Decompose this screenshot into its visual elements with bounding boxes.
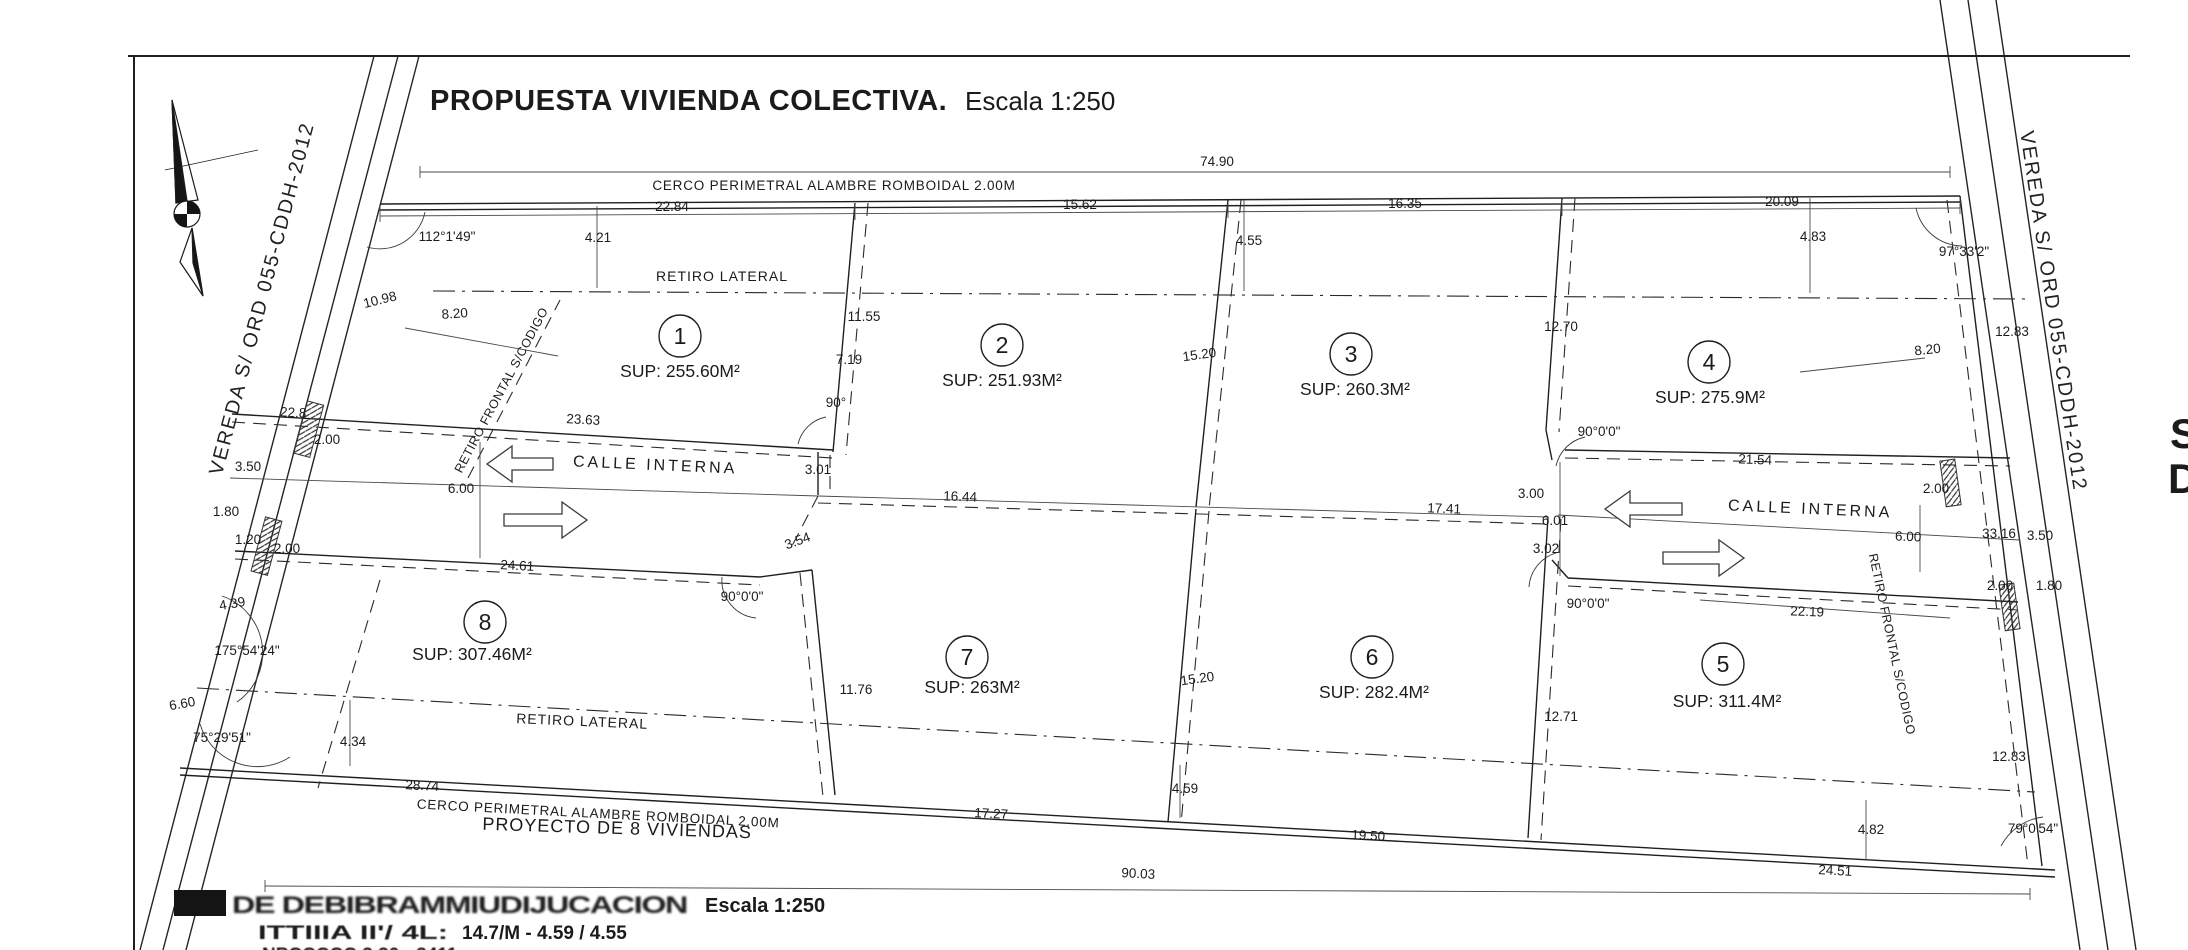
site-plan-drawing: PROPUESTA VIVIENDA COLECTIVA. Escala 1:2… [0, 0, 2188, 950]
drawing-title-scale: Escala 1:250 [965, 86, 1115, 116]
setback-lateral-top-label: RETIRO LATERAL [656, 268, 788, 284]
edge-partial-letter-1: S [2170, 410, 2188, 457]
bottom-title-scale: Escala 1:250 [705, 895, 825, 917]
dimension-label: 17.41 [1427, 500, 1461, 516]
dimension-label: 12.83 [1992, 749, 2026, 764]
lot-area: SUP: 307.46M² [412, 644, 532, 664]
lot-area: SUP: 263M² [924, 677, 1019, 697]
lot-3: 3 SUP: 260.3M² [1300, 333, 1410, 399]
dimension-label: 8.20 [441, 305, 468, 322]
internal-street-left-label: CALLE INTERNA [573, 453, 738, 477]
lot-number: 4 [1703, 349, 1716, 375]
edge-partial-letter-2: D [2168, 455, 2188, 502]
dimension-label: 19.50 [1351, 827, 1386, 844]
north-arrow-icon [165, 100, 258, 296]
dimension-label: 74.90 [1200, 154, 1234, 169]
dimension-label: 6.00 [448, 481, 474, 496]
dimension-label: 22.84 [655, 199, 689, 214]
bottom-line3-prefix: ITTIIIA II'/ 4L: [258, 923, 448, 944]
lot-area: SUP: 260.3M² [1300, 379, 1410, 399]
setback-frontal-left-label: RETIRO FRONTAL S/CODIGO [452, 305, 551, 475]
setback-lateral-bottom-label: RETIRO LATERAL [516, 710, 649, 732]
lot-number: 1 [674, 323, 687, 349]
dimension-label: 175°54'24" [214, 643, 280, 658]
street-name-right: VEREDA S/ ORD 055-CDDH-2012 [2015, 129, 2091, 492]
bottom-line3-values: 14.7/M - 4.59 / 4.55 [462, 923, 627, 944]
dimension-label: 22.8 [280, 404, 307, 420]
site-plan-sheet: PROPUESTA VIVIENDA COLECTIVA. Escala 1:2… [0, 0, 2188, 950]
lot-5: 5 SUP: 311.4M² [1673, 643, 1782, 711]
lot-8: 8 SUP: 307.46M² [412, 601, 532, 664]
lot-area: SUP: 275.9M² [1655, 387, 1765, 407]
lot-number: 6 [1366, 644, 1379, 670]
dimension-label: 1.80 [2036, 578, 2062, 593]
bottom-title-blot [174, 890, 226, 916]
dimension-labels: 74.9022.8415.6216.3520.09112°1'49"97°33'… [168, 154, 2062, 882]
angle-arcs [200, 208, 2043, 846]
dimension-label: 2.00 [1923, 481, 1949, 496]
dimension-label: 79°0'54" [2008, 821, 2059, 836]
dimension-label: 12.83 [1995, 324, 2029, 339]
lot-number: 7 [961, 644, 974, 670]
lot-number: 2 [996, 332, 1009, 358]
dimension-label: 3.50 [2027, 528, 2053, 543]
dimension-label: 28.74 [405, 777, 440, 794]
dimension-label: 90°0'0" [1567, 596, 1610, 611]
dimension-label: 90.03 [1121, 865, 1156, 882]
lot-area: SUP: 255.60M² [620, 361, 740, 381]
lot-6: 6 SUP: 282.4M² [1319, 636, 1429, 702]
dimension-label: 4.82 [1858, 822, 1884, 837]
lot-2: 2 SUP: 251.93M² [942, 324, 1062, 390]
internal-street-right-label: CALLE INTERNA [1728, 497, 1893, 521]
dimension-label: 11.76 [840, 682, 873, 697]
dimension-label: 3.02 [1533, 541, 1559, 556]
dimension-label: 11.55 [848, 309, 881, 324]
dimension-label: 23.63 [566, 411, 601, 428]
lot-number: 5 [1717, 651, 1730, 677]
dimension-label: 75°29'51" [193, 730, 251, 745]
bottom-line4-partial: NPCCCCC 3.30 - 3411 [262, 945, 458, 950]
dimension-label: 2.00 [274, 541, 300, 556]
dimension-label: 24.61 [500, 557, 535, 574]
dimension-label: 4.34 [340, 734, 367, 749]
bottom-title-illegible: DE DEBIBRAMMIUDIJUCACION [232, 892, 687, 919]
dimension-label: 24.51 [1818, 862, 1853, 879]
dimension-label: 12.71 [1544, 709, 1578, 724]
lot-number: 8 [479, 609, 492, 635]
dimension-label: 6.01 [1542, 513, 1568, 528]
setback-lines-dashed [232, 198, 2028, 866]
dimension-label: 17.27 [974, 805, 1009, 822]
dimension-label: 15.62 [1063, 197, 1097, 212]
lot-area: SUP: 282.4M² [1319, 682, 1429, 702]
lot-area: SUP: 251.93M² [942, 370, 1062, 390]
dimension-label: 15.20 [1180, 669, 1216, 689]
dimension-label: 6.60 [168, 694, 196, 713]
drawing-title: PROPUESTA VIVIENDA COLECTIVA. [430, 85, 947, 117]
dimension-label: 4.21 [585, 230, 611, 245]
dimension-label: 3.01 [805, 462, 831, 477]
dimension-label: 1.80 [213, 504, 239, 519]
dimension-label: 3.50 [235, 459, 261, 474]
dimension-label: 16.44 [943, 488, 978, 504]
dimension-label: 10.98 [362, 288, 398, 311]
dimension-label: 3.54 [783, 529, 813, 552]
dimension-label: 22.19 [1790, 603, 1824, 619]
dimension-label: 33.16 [1982, 526, 2016, 541]
dimension-label: 7.19 [836, 352, 862, 367]
dimension-label: 4.59 [1172, 781, 1198, 796]
lateral-setback-lines [197, 291, 2035, 792]
dimension-label: 97°33'2" [1939, 244, 1990, 259]
dimension-label: 90°0'0" [1578, 424, 1621, 439]
dimension-label: 90° [826, 395, 846, 410]
lot-area: SUP: 311.4M² [1673, 691, 1782, 711]
dimension-label: 2.00 [1987, 578, 2013, 593]
dimension-label: 8.20 [1914, 341, 1942, 359]
dimension-label: 90°0'0" [721, 589, 764, 604]
dimension-label: 20.09 [1765, 194, 1799, 209]
dimension-label: 112°1'49" [419, 229, 476, 244]
lot-1: 1 SUP: 255.60M² [620, 315, 740, 381]
dimension-label: 2.00 [314, 432, 340, 447]
dimension-label: 4.55 [1236, 233, 1262, 248]
dimension-label: 4.39 [218, 594, 246, 613]
lot-number: 3 [1345, 341, 1358, 367]
dimension-lines [230, 166, 2030, 900]
dimension-label: 6.00 [1895, 529, 1922, 545]
lot-7: 7 SUP: 263M² [924, 636, 1019, 697]
dimension-label: 21.54 [1738, 451, 1773, 467]
fence-label-top: CERCO PERIMETRAL ALAMBRE ROMBOIDAL 2.00M [652, 178, 1015, 193]
dimension-label: 16.35 [1388, 196, 1422, 211]
dimension-label: 1.20 [235, 532, 261, 547]
lot-4: 4 SUP: 275.9M² [1655, 341, 1765, 407]
dimension-label: 3.00 [1518, 486, 1544, 501]
dimension-label: 12.70 [1544, 319, 1578, 334]
dimension-label: 4.83 [1800, 229, 1826, 244]
setback-frontal-right-label: RETIRO FRONTAL S/CODIGO [1866, 552, 1918, 736]
